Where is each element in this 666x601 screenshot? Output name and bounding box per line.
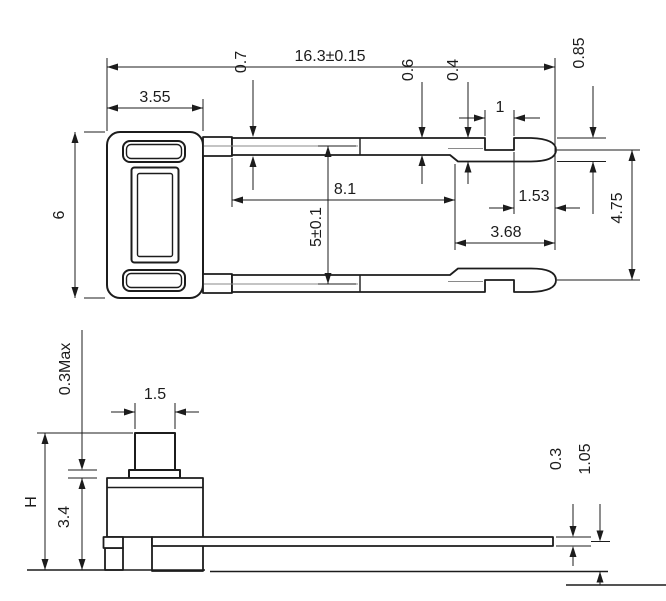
dim-button-clearance-label: 0.3Max [57, 343, 74, 395]
dim-tip-height: 0.85 [557, 37, 606, 214]
dim-pin-width: 0.6 [400, 59, 426, 184]
drawing-canvas: 16.3±0.15 3.55 6 0.7 [0, 0, 666, 601]
terminal-lead [152, 537, 553, 546]
dim-button-width-label: 1.5 [144, 386, 166, 403]
left-foot [105, 548, 123, 570]
dim-pin-root-width-label: 0.7 [233, 51, 250, 73]
dim-tip-span: 4.75 [609, 150, 636, 280]
side-view: H 0.3Max 3.4 1.5 [23, 330, 666, 585]
dim-pin-pitch-label: 5±0.1 [308, 207, 325, 247]
dim-notch-length: 1 [459, 99, 540, 136]
button-flange [129, 470, 180, 478]
center-window-inner [138, 174, 173, 257]
dim-lead-height: 1.05 [577, 443, 610, 585]
dim-pin-pitch: 5±0.1 [308, 146, 356, 284]
dim-pin-root-width: 0.7 [233, 51, 257, 190]
dim-button-width: 1.5 [111, 386, 199, 429]
dim-body-height-side-label: 3.4 [56, 506, 73, 528]
dim-tip-section: 3.68 [455, 224, 555, 247]
terminal-pin-lower [203, 269, 640, 294]
dim-body-width: 3.55 [107, 89, 203, 131]
dim-tip-length-label: 1.53 [518, 188, 549, 205]
pin-upper-outline [232, 138, 556, 162]
dim-body-height-side: 3.4 [56, 478, 86, 570]
bottom-slot-inner [127, 274, 182, 288]
dim-lead-height-label: 1.05 [577, 443, 594, 474]
dim-tip-span-label: 4.75 [609, 192, 626, 223]
dim-lead-thickness-label: 0.3 [548, 448, 565, 470]
dim-body-height-label: 6 [51, 210, 68, 219]
dim-pin-straight-length-label: 8.1 [334, 181, 356, 198]
switch-body-side-view [27, 433, 666, 585]
dim-pin-width-label: 0.6 [400, 59, 417, 81]
pin-lower-outline [232, 269, 556, 293]
engineering-drawing: 16.3±0.15 3.55 6 0.7 [0, 0, 666, 601]
dim-body-height-top: 6 [51, 132, 105, 298]
switch-body-top-view [107, 132, 203, 298]
dim-button-clearance: 0.3Max [57, 330, 97, 478]
left-foot-lip [104, 537, 124, 548]
dim-total-height-label: H [23, 496, 40, 508]
button-stem [135, 433, 175, 470]
top-slot-inner [127, 145, 182, 159]
dim-body-width-label: 3.55 [139, 89, 170, 106]
center-window-outer [132, 168, 179, 263]
dim-tip-height-label: 0.85 [571, 37, 588, 68]
dim-notch-length-label: 1 [496, 99, 505, 116]
dim-tip-section-label: 3.68 [490, 224, 521, 241]
top-view: 16.3±0.15 3.55 6 0.7 [51, 37, 640, 298]
dim-overall-length-label: 16.3±0.15 [294, 48, 365, 65]
dim-notch-remainder: 0.4 [445, 59, 472, 184]
dim-notch-remainder-label: 0.4 [445, 59, 462, 81]
